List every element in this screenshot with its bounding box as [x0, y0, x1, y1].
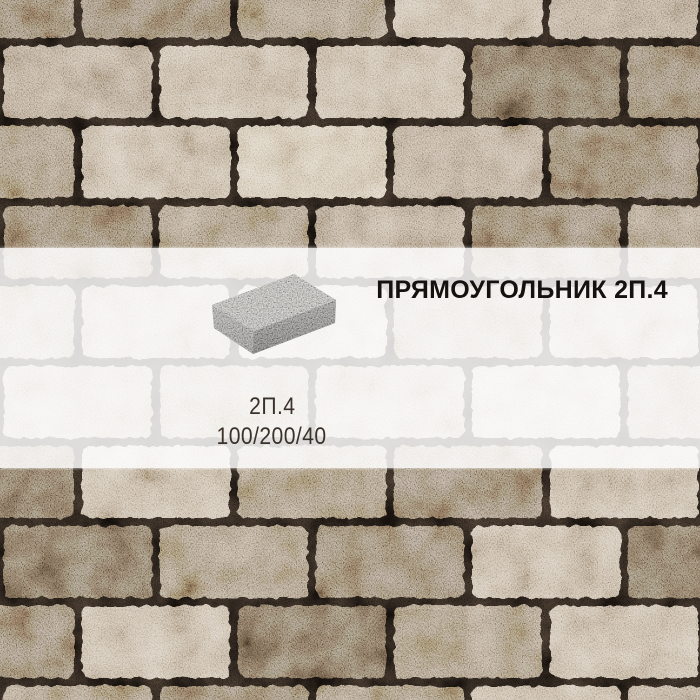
- paver-speckle-texture: [206, 270, 340, 362]
- product-info-band: ПРЯМОУГОЛЬНИК 2П.4 2П.4 100/200/40: [0, 248, 700, 468]
- product-model: 2П.4: [162, 392, 382, 422]
- product-caption: 2П.4 100/200/40: [162, 392, 382, 452]
- product-title: ПРЯМОУГОЛЬНИК 2П.4: [376, 276, 668, 305]
- product-tile: ПРЯМОУГОЛЬНИК 2П.4 2П.4 100/200/40: [0, 0, 700, 700]
- product-dimensions-text: 100/200/40: [217, 422, 327, 452]
- product-photo-paver-3d: [206, 270, 340, 362]
- product-dimensions: 100/200/40: [162, 422, 382, 452]
- product-model-text: 2П.4: [249, 392, 295, 422]
